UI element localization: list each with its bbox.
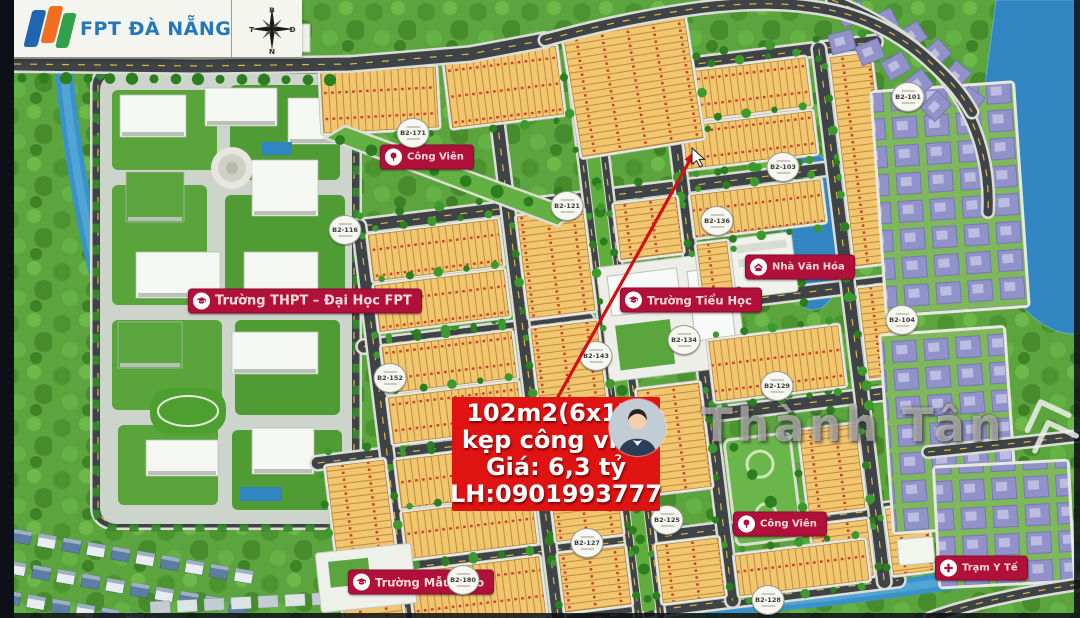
annotation-overlay [0, 0, 1080, 618]
brand-name: FPT ĐÀ NẴNG [80, 18, 231, 40]
ad-phone-text: LH:0901993777 [450, 481, 662, 508]
fpt-logo-icon [16, 4, 80, 54]
map-title-bar: FPT ĐÀ NẴNG B Đ N [14, 0, 302, 59]
compass-south-label: N [269, 47, 275, 55]
pointer-arrow [554, 150, 696, 404]
compass-rose: B Đ N T [231, 0, 312, 57]
masterplan-map-image: Công ViênTrường THPT – Đại Học FPTTrường… [0, 0, 1080, 618]
agent-avatar [609, 399, 666, 456]
ad-price-text: Giá: 6,3 tỷ [486, 454, 626, 481]
compass-east-label: Đ [290, 24, 296, 33]
chevron-watermark-icon [1020, 394, 1076, 450]
compass-north-label: B [270, 5, 276, 14]
agent-portrait-icon [609, 399, 666, 456]
